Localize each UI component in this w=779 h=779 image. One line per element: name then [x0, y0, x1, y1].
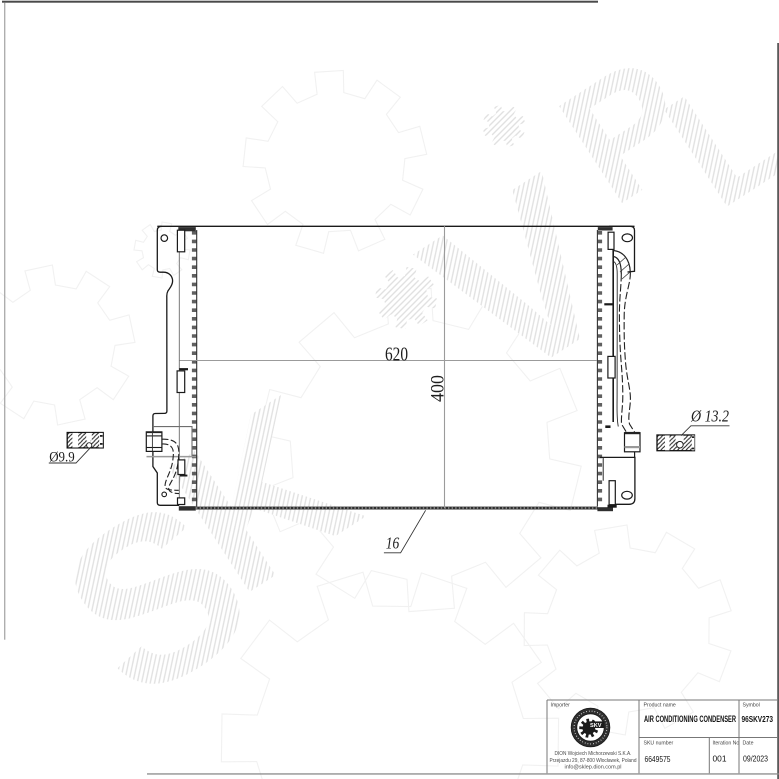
svg-text:09/2023: 09/2023: [743, 754, 768, 764]
svg-text:Symbol: Symbol: [743, 703, 760, 709]
svg-text:SKU number: SKU number: [644, 741, 674, 747]
svg-text:620: 620: [385, 344, 408, 366]
svg-text:16: 16: [386, 534, 400, 553]
svg-text:400: 400: [428, 375, 449, 402]
svg-text:SKV: SKV: [590, 723, 602, 729]
svg-text:Przejazdu 29, 87-800 Włocławek: Przejazdu 29, 87-800 Włocławek, Poland: [550, 758, 637, 764]
svg-text:info@sklep.dion.com.pl: info@sklep.dion.com.pl: [565, 764, 622, 770]
svg-text:Product name: Product name: [644, 703, 676, 709]
svg-text:Date: Date: [743, 741, 754, 747]
svg-text:Iteration No: Iteration No: [713, 741, 740, 747]
svg-text:Ø9.9: Ø9.9: [49, 450, 74, 466]
svg-text:Importer: Importer: [551, 703, 571, 709]
svg-text:001: 001: [713, 754, 727, 764]
svg-text:AIR CONDITIONING CONDENSER: AIR CONDITIONING CONDENSER: [644, 714, 736, 724]
svg-text:96SKV273: 96SKV273: [742, 714, 774, 724]
svg-text:Ø 13.2: Ø 13.2: [690, 406, 729, 425]
svg-text:6649575: 6649575: [645, 754, 671, 764]
svg-text:DION Wojciech Michorzewski S.K: DION Wojciech Michorzewski S.K.A.: [555, 751, 632, 757]
